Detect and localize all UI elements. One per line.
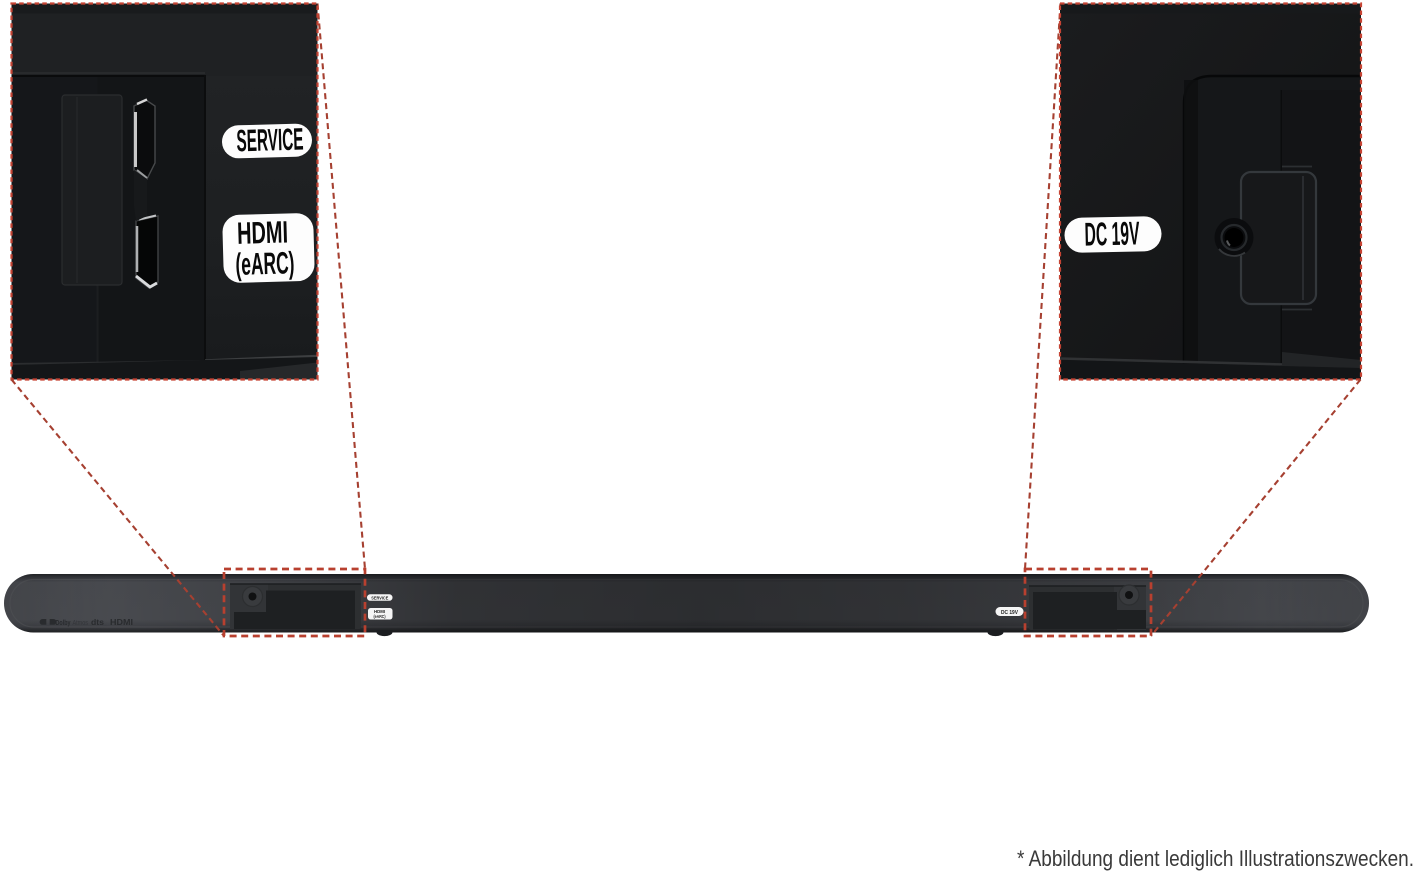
- svg-text:dts: dts: [91, 618, 105, 627]
- svg-text:(eARC): (eARC): [374, 614, 386, 619]
- svg-text:HDMI: HDMI: [110, 618, 133, 627]
- svg-text:(eARC): (eARC): [235, 245, 295, 282]
- svg-text:SERVICE: SERVICE: [371, 596, 389, 602]
- svg-text:Atmos: Atmos: [73, 620, 89, 627]
- svg-text:Dolby: Dolby: [56, 620, 71, 627]
- svg-text:SERVICE: SERVICE: [236, 121, 304, 158]
- svg-text:DC 19V: DC 19V: [1084, 214, 1140, 252]
- svg-text:* Abbildung dient lediglich Il: * Abbildung dient lediglich Illustration…: [1017, 846, 1414, 871]
- svg-text:DC 19V: DC 19V: [1001, 610, 1018, 616]
